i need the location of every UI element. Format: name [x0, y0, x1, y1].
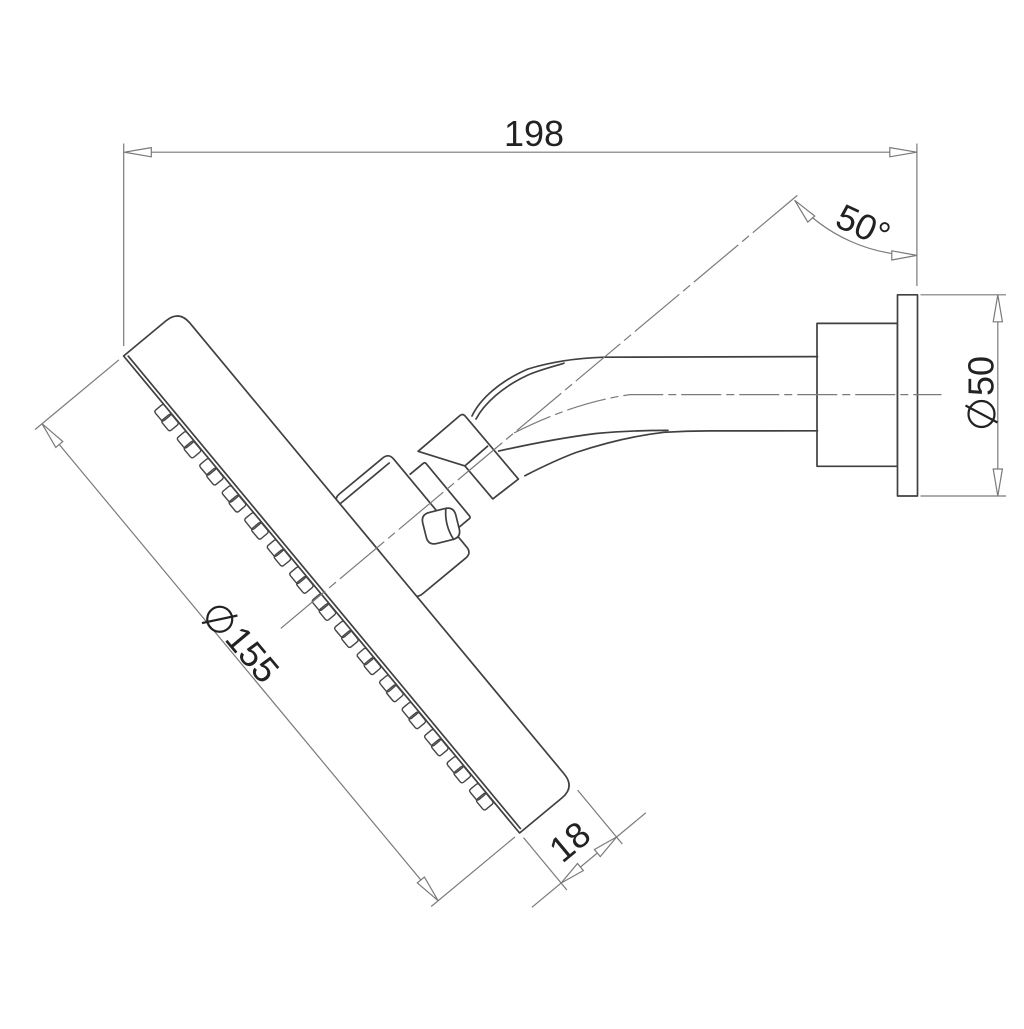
- svg-text:198: 198: [504, 113, 564, 154]
- svg-text:50: 50: [961, 356, 1002, 396]
